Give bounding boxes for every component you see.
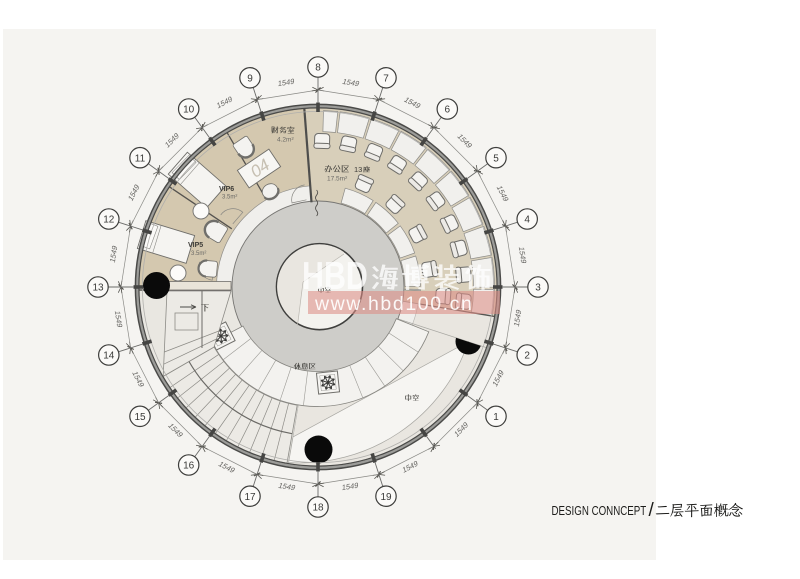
svg-text:1: 1 (493, 412, 499, 423)
svg-text:19: 19 (380, 492, 392, 503)
svg-text:3.5m²: 3.5m² (222, 195, 237, 201)
svg-text:VIP6: VIP6 (219, 186, 234, 193)
svg-text:9: 9 (247, 73, 253, 84)
svg-text:17.5m²: 17.5m² (327, 176, 348, 183)
svg-text:/: / (649, 500, 655, 521)
svg-text:16: 16 (183, 461, 195, 472)
svg-text:VIP5: VIP5 (188, 242, 203, 249)
svg-text:8: 8 (315, 63, 321, 74)
svg-text:13: 13 (354, 165, 362, 174)
svg-text:www.hbd100.cn: www.hbd100.cn (314, 293, 473, 315)
svg-text:2: 2 (524, 351, 530, 362)
svg-text:14: 14 (103, 351, 115, 362)
svg-text:10: 10 (183, 105, 195, 116)
svg-text:4: 4 (524, 215, 530, 226)
svg-text:4.2m²: 4.2m² (277, 137, 294, 144)
svg-text:7: 7 (383, 73, 389, 84)
svg-text:DESIGN CONNCEPT: DESIGN CONNCEPT (552, 505, 647, 519)
svg-text:11: 11 (135, 153, 146, 164)
svg-text:12: 12 (103, 215, 115, 226)
svg-text:3: 3 (535, 283, 541, 294)
svg-text:3.5m²: 3.5m² (191, 251, 206, 257)
svg-text:5: 5 (493, 153, 499, 164)
svg-text:17: 17 (244, 492, 256, 503)
svg-text:15: 15 (134, 412, 146, 423)
svg-text:13: 13 (92, 283, 104, 294)
svg-text:18: 18 (312, 503, 324, 514)
svg-text:6: 6 (445, 105, 451, 116)
